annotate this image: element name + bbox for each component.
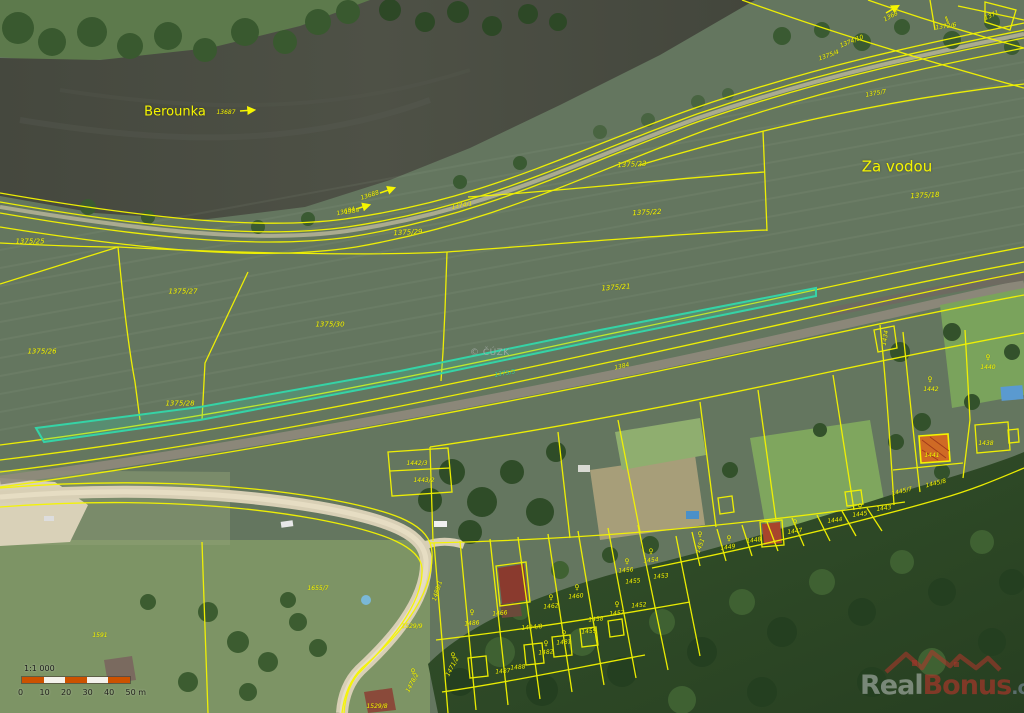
scale-tick: 0 (18, 688, 23, 697)
brand-real: Real (860, 670, 923, 701)
scale-tick: 40 (104, 688, 114, 697)
scale-tick: 20 (61, 688, 71, 697)
realbonus-wordmark: RealBonus.cz (860, 672, 1022, 699)
scale-ratio-label: 1:1 000 (24, 664, 55, 673)
scale-tick: 10 (40, 688, 50, 697)
round-pool (361, 595, 371, 605)
scale-bar: 1:1 000 01020304050 m (14, 664, 154, 708)
scale-bar-graphic (22, 677, 130, 683)
scale-tick: 30 (83, 688, 93, 697)
aerial-cadastral-map (0, 0, 1024, 713)
selected-building[interactable] (919, 434, 950, 463)
swimming-pool (686, 511, 699, 519)
scale-tick: 50 m (126, 688, 147, 697)
brand-bonus: Bonus (923, 670, 1012, 701)
swimming-pool (1000, 385, 1023, 401)
greenhouse (578, 465, 590, 472)
copyright-watermark: © ČÚZK (470, 348, 510, 358)
scale-tick-labels: 01020304050 m (14, 688, 154, 700)
vehicle (44, 516, 54, 521)
map-canvas[interactable]: BerounkaZa vodou13687136881368413681374/… (0, 0, 1024, 713)
realbonus-watermark: RealBonus.cz (860, 650, 1022, 706)
vehicle (434, 521, 447, 527)
brand-cz: .cz (1011, 677, 1024, 699)
